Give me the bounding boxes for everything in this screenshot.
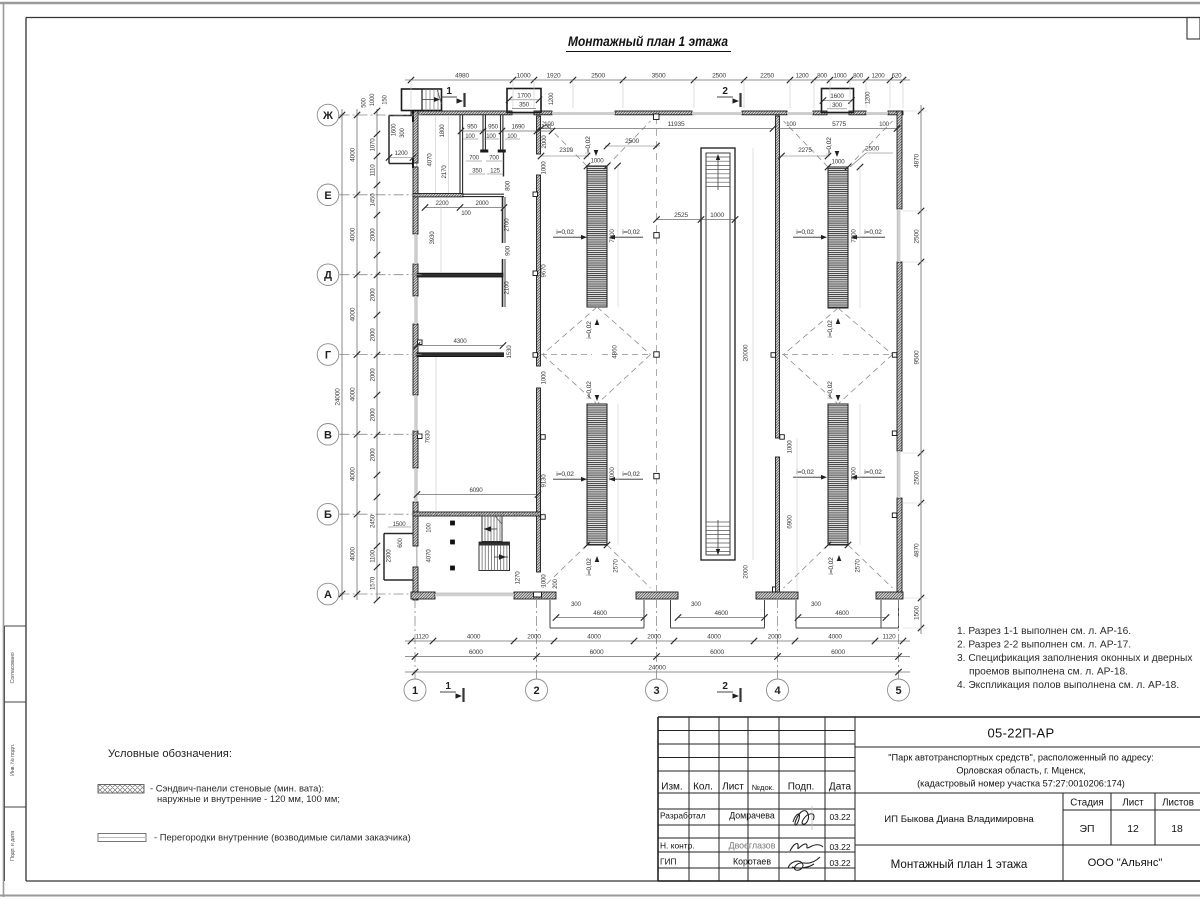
svg-text:1270: 1270 — [515, 571, 522, 585]
svg-text:24000: 24000 — [648, 664, 666, 671]
svg-text:7000: 7000 — [851, 229, 858, 243]
svg-text:4870: 4870 — [913, 154, 920, 168]
svg-text:i=0,02: i=0,02 — [827, 381, 834, 399]
svg-text:Ж: Ж — [322, 110, 333, 122]
svg-text:300: 300 — [400, 127, 406, 137]
svg-text:2570: 2570 — [613, 559, 620, 573]
svg-text:1200: 1200 — [796, 72, 810, 79]
svg-text:1000: 1000 — [541, 371, 548, 385]
svg-text:2. Разрез 2-2 выполнен см. л.: 2. Разрез 2-2 выполнен см. л. АР-17. — [957, 640, 1131, 651]
svg-text:1: 1 — [446, 86, 452, 97]
svg-text:2250: 2250 — [760, 72, 774, 79]
svg-text:2310: 2310 — [559, 147, 573, 154]
svg-text:4000: 4000 — [467, 633, 481, 640]
svg-text:1000: 1000 — [710, 212, 724, 219]
svg-text:700: 700 — [489, 155, 499, 162]
svg-text:2570: 2570 — [855, 559, 862, 573]
svg-text:2: 2 — [722, 86, 728, 97]
svg-text:Условные обозначения:: Условные обозначения: — [108, 748, 232, 760]
svg-text:Дата: Дата — [829, 782, 852, 793]
svg-text:500: 500 — [362, 97, 368, 107]
svg-text:i=0,02: i=0,02 — [556, 471, 574, 478]
svg-text:300: 300 — [571, 601, 581, 608]
svg-text:7000: 7000 — [851, 467, 858, 481]
svg-text:2000: 2000 — [527, 633, 541, 640]
svg-text:4300: 4300 — [454, 338, 468, 345]
svg-text:Лист: Лист — [1122, 798, 1144, 809]
svg-text:2000: 2000 — [369, 448, 376, 462]
svg-text:800: 800 — [817, 72, 827, 79]
svg-text:Подп.: Подп. — [788, 782, 815, 793]
svg-text:Орловская область, г. Мценск,: Орловская область, г. Мценск, — [956, 766, 1085, 776]
svg-text:i=0,02: i=0,02 — [586, 381, 593, 399]
svg-text:1000: 1000 — [832, 158, 846, 165]
svg-text:1450: 1450 — [369, 193, 376, 207]
svg-text:1200: 1200 — [395, 150, 409, 157]
svg-text:2500: 2500 — [712, 72, 726, 79]
svg-text:300: 300 — [832, 102, 843, 109]
svg-text:800: 800 — [853, 72, 863, 79]
svg-text:2000: 2000 — [768, 633, 782, 640]
svg-text:i=0,02: i=0,02 — [864, 469, 882, 476]
svg-text:А: А — [324, 589, 332, 601]
svg-text:300: 300 — [811, 601, 821, 608]
svg-text:1570: 1570 — [369, 576, 376, 590]
svg-text:i=0,02: i=0,02 — [586, 558, 593, 576]
svg-text:4860: 4860 — [612, 345, 619, 359]
svg-text:2275: 2275 — [798, 147, 812, 154]
svg-text:1110: 1110 — [369, 164, 376, 177]
svg-text:2500: 2500 — [625, 138, 639, 145]
svg-text:2000: 2000 — [541, 135, 548, 149]
svg-text:Б: Б — [324, 509, 332, 521]
svg-text:Разработал: Разработал — [660, 811, 706, 821]
svg-text:Домрачева: Домрачева — [729, 811, 775, 821]
svg-text:03.22: 03.22 — [830, 842, 851, 852]
svg-text:2000: 2000 — [743, 565, 750, 579]
svg-text:Изм.: Изм. — [661, 782, 682, 793]
svg-text:350: 350 — [472, 168, 482, 175]
svg-text:Листов: Листов — [1162, 798, 1194, 809]
svg-text:проемов выполнена см. л. АР-18: проемов выполнена см. л. АР-18. — [969, 667, 1128, 678]
svg-text:2500: 2500 — [865, 145, 879, 152]
svg-text:1200: 1200 — [866, 91, 872, 104]
svg-text:Е: Е — [324, 190, 331, 202]
svg-text:7000: 7000 — [609, 229, 616, 243]
svg-text:100: 100 — [427, 522, 433, 532]
svg-text:6090: 6090 — [470, 487, 484, 494]
svg-text:05-22П-АР: 05-22П-АР — [988, 726, 1055, 741]
svg-text:4000: 4000 — [707, 633, 721, 640]
svg-text:1690: 1690 — [512, 123, 526, 130]
svg-text:2000: 2000 — [369, 408, 376, 422]
svg-text:5: 5 — [895, 685, 901, 697]
svg-text:2000: 2000 — [369, 228, 376, 242]
svg-text:9670: 9670 — [541, 264, 548, 278]
svg-text:7630: 7630 — [425, 430, 432, 444]
svg-text:300: 300 — [691, 601, 701, 608]
svg-text:2000: 2000 — [476, 200, 490, 207]
svg-text:1600: 1600 — [830, 93, 844, 100]
svg-text:200: 200 — [553, 578, 559, 588]
svg-text:Н. контр.: Н. контр. — [660, 841, 695, 851]
svg-text:1500: 1500 — [913, 606, 920, 620]
svg-text:1: 1 — [412, 685, 418, 697]
svg-text:2300: 2300 — [386, 549, 393, 563]
svg-text:1700: 1700 — [517, 93, 531, 100]
svg-text:100: 100 — [786, 121, 796, 128]
svg-text:Стадия: Стадия — [1070, 798, 1103, 809]
svg-text:6900: 6900 — [787, 515, 794, 529]
svg-text:6000: 6000 — [710, 649, 724, 656]
svg-text:2100: 2100 — [504, 281, 511, 295]
svg-text:2450: 2450 — [369, 514, 376, 528]
svg-text:1200: 1200 — [872, 72, 886, 79]
svg-text:1000: 1000 — [787, 440, 794, 454]
svg-text:1000: 1000 — [541, 161, 548, 175]
svg-text:1000: 1000 — [834, 72, 848, 79]
svg-text:Д: Д — [324, 270, 332, 282]
svg-text:03.22: 03.22 — [830, 812, 851, 822]
svg-text:800: 800 — [505, 180, 512, 190]
svg-text:900: 900 — [505, 245, 512, 255]
svg-text:2525: 2525 — [674, 212, 688, 219]
svg-text:2500: 2500 — [591, 72, 605, 79]
svg-text:3500: 3500 — [652, 72, 666, 79]
svg-text:7000: 7000 — [609, 467, 616, 481]
svg-text:i=0,02: i=0,02 — [586, 321, 593, 339]
svg-text:1530: 1530 — [506, 345, 513, 359]
svg-text:12: 12 — [1127, 824, 1139, 835]
svg-text:i=0,02: i=0,02 — [828, 557, 835, 575]
svg-text:Двоеглазов: Двоеглазов — [729, 841, 776, 851]
svg-text:Инв. № подл.: Инв. № подл. — [10, 743, 16, 776]
svg-text:9500: 9500 — [913, 350, 920, 364]
svg-text:1000: 1000 — [591, 158, 605, 165]
svg-text:4000: 4000 — [587, 633, 601, 640]
svg-text:i=0,02: i=0,02 — [827, 320, 834, 338]
svg-text:100: 100 — [541, 124, 551, 130]
svg-text:1800: 1800 — [439, 124, 446, 138]
svg-text:11935: 11935 — [668, 121, 685, 128]
svg-text:3930: 3930 — [429, 231, 436, 245]
svg-text:Монтажный план 1 этажа: Монтажный план 1 этажа — [891, 858, 1028, 871]
svg-text:620: 620 — [892, 72, 902, 79]
svg-text:4000: 4000 — [828, 633, 842, 640]
svg-text:24000: 24000 — [334, 388, 341, 406]
svg-text:2500: 2500 — [913, 229, 920, 243]
svg-text:4000: 4000 — [349, 147, 356, 161]
svg-text:700: 700 — [469, 155, 479, 162]
svg-text:1000: 1000 — [541, 574, 548, 588]
svg-text:4000: 4000 — [349, 227, 356, 241]
svg-text:В: В — [324, 429, 332, 441]
svg-text:125: 125 — [490, 168, 500, 175]
svg-text:6000: 6000 — [469, 649, 483, 656]
svg-text:Коротаев: Коротаев — [733, 857, 771, 867]
svg-text:ГИП: ГИП — [660, 857, 677, 867]
svg-text:Лист: Лист — [722, 782, 744, 793]
svg-text:i=0,02: i=0,02 — [556, 229, 574, 236]
svg-text:6000: 6000 — [831, 649, 845, 656]
svg-text:наружные и внутренние - 120 мм: наружные и внутренние - 120 мм, 100 мм; — [157, 793, 340, 804]
svg-text:1. Разрез 1-1 выполнен см. л.: 1. Разрез 1-1 выполнен см. л. АР-16. — [957, 626, 1131, 637]
svg-text:2170: 2170 — [441, 165, 448, 179]
svg-text:18: 18 — [1171, 824, 1183, 835]
svg-text:Согласовано: Согласовано — [10, 652, 16, 683]
svg-text:Монтажный план 1 этажа: Монтажный план 1 этажа — [568, 34, 728, 49]
svg-text:1120: 1120 — [416, 633, 430, 640]
svg-text:4000: 4000 — [349, 387, 356, 401]
svg-text:1: 1 — [445, 681, 451, 692]
svg-text:4980: 4980 — [455, 72, 469, 79]
svg-text:150: 150 — [383, 94, 389, 104]
svg-text:i=0,02: i=0,02 — [585, 136, 592, 154]
svg-text:1600: 1600 — [392, 123, 398, 136]
svg-text:03.22: 03.22 — [830, 858, 851, 868]
svg-text:i=0,02: i=0,02 — [864, 229, 882, 236]
svg-text:9130: 9130 — [541, 474, 548, 488]
svg-text:950: 950 — [467, 123, 477, 130]
svg-text:1100: 1100 — [369, 549, 376, 562]
svg-text:i=0,02: i=0,02 — [796, 469, 814, 476]
svg-text:1120: 1120 — [883, 633, 897, 640]
svg-text:4070: 4070 — [426, 549, 433, 563]
svg-text:Подп. и дата: Подп. и дата — [10, 830, 16, 861]
svg-text:Кол.: Кол. — [693, 782, 713, 793]
svg-text:5775: 5775 — [832, 121, 846, 128]
svg-text:350: 350 — [519, 102, 530, 109]
svg-text:20000: 20000 — [743, 344, 750, 361]
svg-text:4600: 4600 — [835, 610, 849, 617]
svg-text:2: 2 — [722, 681, 728, 692]
svg-text:1000: 1000 — [370, 93, 376, 106]
svg-text:i=0,02: i=0,02 — [622, 471, 640, 478]
svg-text:4000: 4000 — [349, 547, 356, 561]
svg-text:i=0,02: i=0,02 — [622, 229, 640, 236]
svg-text:4000: 4000 — [349, 307, 356, 321]
svg-text:2700: 2700 — [504, 218, 511, 232]
svg-text:4070: 4070 — [427, 153, 434, 167]
svg-text:"Парк автотранспортных средств: "Парк автотранспортных средств", располо… — [888, 753, 1154, 763]
svg-text:1200: 1200 — [549, 92, 555, 105]
svg-text:2500: 2500 — [913, 471, 920, 485]
svg-text:600: 600 — [398, 537, 404, 547]
svg-text:ИП Быкова Диана Владимировна: ИП Быкова Диана Владимировна — [884, 814, 1034, 825]
svg-text:ЭП: ЭП — [1080, 824, 1095, 835]
svg-text:4: 4 — [774, 685, 781, 697]
svg-text:2000: 2000 — [369, 368, 376, 382]
svg-text:- Перегородки внутренние (возв: - Перегородки внутренние (возводимые сил… — [154, 832, 411, 843]
svg-text:4. Экспликация полов выполнена: 4. Экспликация полов выполнена см. л. АР… — [957, 680, 1179, 691]
svg-text:Г: Г — [325, 350, 332, 362]
svg-text:4600: 4600 — [715, 610, 729, 617]
svg-text:2200: 2200 — [436, 200, 450, 207]
svg-text:2000: 2000 — [369, 328, 376, 342]
svg-text:i=0,02: i=0,02 — [826, 137, 833, 155]
svg-text:4870: 4870 — [913, 543, 920, 557]
svg-text:1000: 1000 — [517, 72, 531, 79]
svg-text:2000: 2000 — [647, 633, 661, 640]
svg-text:i=0,02: i=0,02 — [796, 229, 814, 236]
svg-text:1920: 1920 — [547, 72, 561, 79]
svg-text:6000: 6000 — [590, 649, 604, 656]
svg-text:2000: 2000 — [369, 288, 376, 302]
svg-text:3: 3 — [653, 685, 659, 697]
svg-text:(кадастровый номер участка 57:: (кадастровый номер участка 57:27:0010206… — [917, 779, 1125, 789]
svg-text:№док.: №док. — [752, 783, 774, 792]
svg-text:100: 100 — [461, 211, 471, 217]
svg-text:ООО "Альянс": ООО "Альянс" — [1088, 857, 1163, 869]
svg-text:100: 100 — [879, 121, 889, 128]
svg-text:3. Спецификация заполнения око: 3. Спецификация заполнения оконных и две… — [957, 652, 1192, 664]
svg-text:- Сэндвич-панели стеновые (мин: - Сэндвич-панели стеновые (мин. вата): — [150, 783, 324, 794]
svg-text:4000: 4000 — [349, 467, 356, 481]
svg-text:2: 2 — [533, 685, 539, 697]
svg-text:4600: 4600 — [593, 610, 607, 617]
svg-text:950: 950 — [488, 123, 498, 130]
svg-text:1070: 1070 — [369, 138, 376, 152]
